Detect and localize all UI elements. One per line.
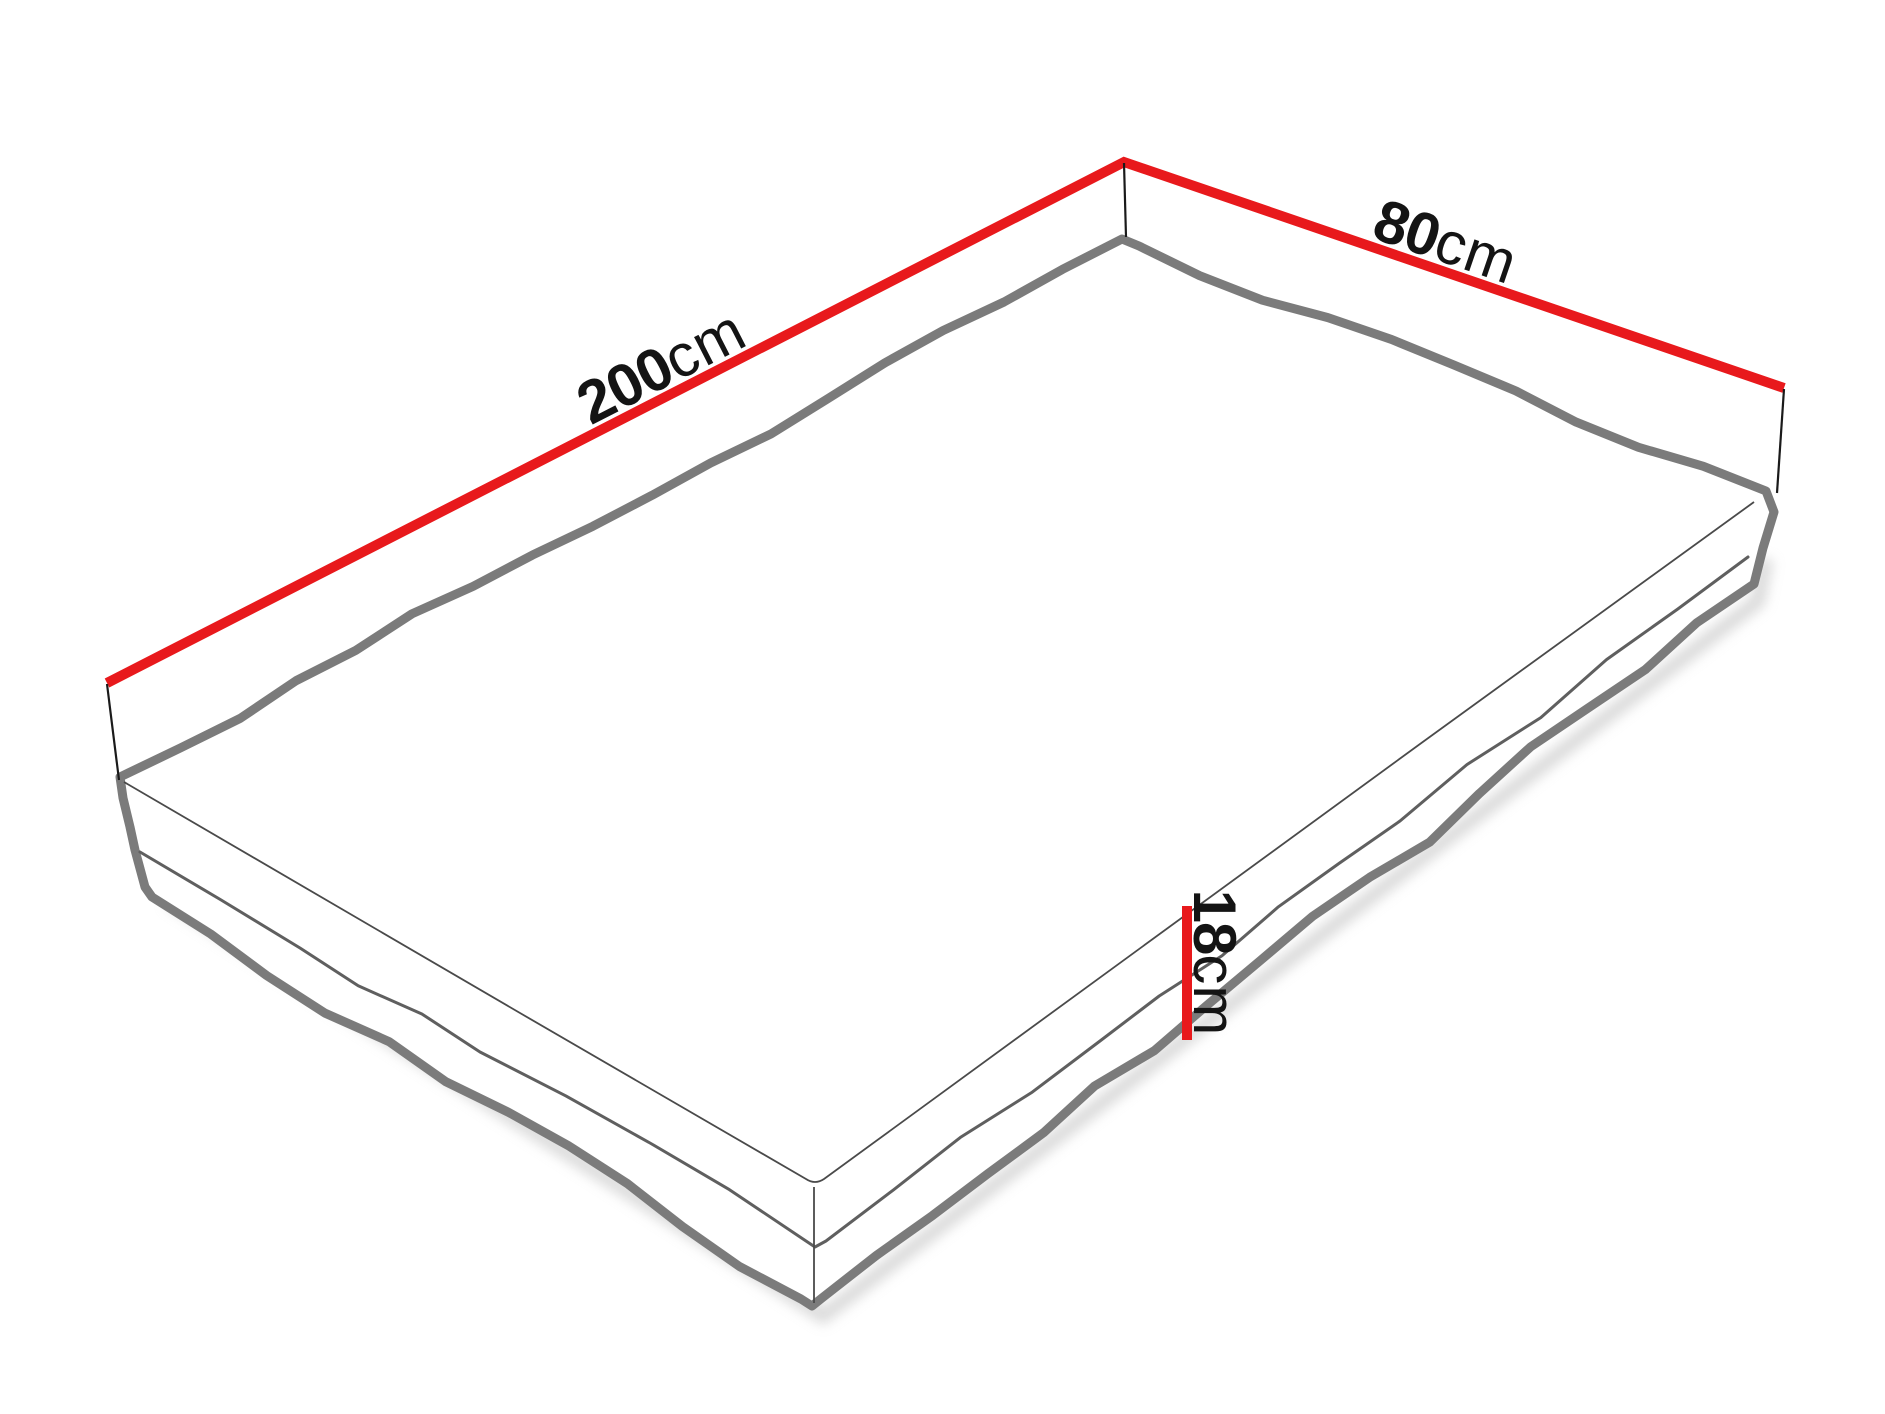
label-length: 200cm (566, 295, 756, 436)
tick-left (107, 684, 119, 780)
label-width: 80cm (1366, 186, 1527, 297)
tick-right (1777, 389, 1784, 493)
label-height: 18cm (1182, 890, 1249, 1037)
mattress-dimensions-diagram: 200cm 80cm 18cm (0, 0, 1885, 1414)
diagram-canvas: 200cm 80cm 18cm (0, 0, 1885, 1414)
label-height-unit: cm (1182, 954, 1249, 1036)
tick-apex (1124, 163, 1126, 237)
label-height-value: 18 (1182, 890, 1249, 955)
